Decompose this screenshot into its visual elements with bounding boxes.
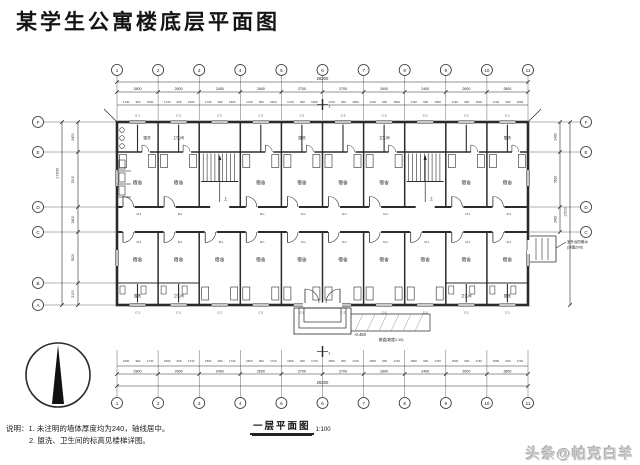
svg-text:1740: 1740	[352, 359, 359, 363]
svg-text:卫生间: 卫生间	[461, 293, 472, 298]
svg-text:900: 900	[341, 359, 346, 363]
svg-text:1500: 1500	[493, 359, 500, 363]
svg-text:宿舍: 宿舍	[133, 179, 143, 186]
svg-text:2800: 2800	[503, 87, 511, 91]
svg-text:1740: 1740	[164, 100, 171, 104]
svg-text:室外台阶散水: 室外台阶散水	[567, 239, 588, 244]
svg-text:2600: 2600	[380, 87, 388, 91]
svg-text:宿舍: 宿舍	[174, 256, 184, 263]
svg-text:M-1: M-1	[342, 212, 347, 216]
svg-text:1500: 1500	[188, 100, 195, 104]
svg-text:M-1: M-1	[137, 240, 142, 244]
svg-text:C-2: C-2	[464, 311, 469, 315]
svg-text:2700: 2700	[339, 369, 347, 373]
svg-text:1740: 1740	[188, 359, 195, 363]
svg-text:1740: 1740	[287, 100, 294, 104]
svg-text:2600: 2600	[462, 87, 470, 91]
svg-text:900: 900	[341, 100, 346, 104]
svg-text:1740: 1740	[517, 359, 524, 363]
svg-text:宿舍: 宿舍	[215, 256, 225, 263]
svg-text:M-1: M-1	[424, 240, 429, 244]
svg-text:1: 1	[116, 401, 119, 406]
drawing-title-text: 一层平面图	[250, 421, 314, 435]
svg-text:1: 1	[328, 104, 331, 109]
svg-text:2400: 2400	[71, 216, 75, 224]
svg-text:2700: 2700	[339, 87, 347, 91]
svg-text:宿舍: 宿舍	[338, 256, 348, 263]
svg-text:M-1: M-1	[260, 240, 265, 244]
svg-text:M-1: M-1	[507, 240, 512, 244]
svg-text:2800: 2800	[134, 87, 142, 91]
svg-text:2400: 2400	[216, 87, 224, 91]
svg-text:5100: 5100	[71, 176, 75, 184]
svg-text:17200: 17200	[564, 207, 568, 217]
svg-text:宿舍: 宿舍	[338, 179, 348, 186]
svg-text:1740: 1740	[393, 359, 400, 363]
svg-text:1740: 1740	[476, 359, 483, 363]
svg-text:盥洗: 盥洗	[504, 293, 512, 298]
svg-text:1500: 1500	[410, 359, 417, 363]
svg-text:M-1: M-1	[178, 212, 183, 216]
svg-text:5: 5	[280, 401, 283, 406]
svg-text:900: 900	[259, 100, 264, 104]
svg-text:1500: 1500	[476, 100, 483, 104]
svg-text:宿舍: 宿舍	[461, 256, 471, 263]
svg-text:M-1: M-1	[260, 212, 265, 216]
svg-text:1500: 1500	[393, 100, 400, 104]
svg-text:1500: 1500	[352, 100, 359, 104]
svg-text:900: 900	[218, 359, 223, 363]
svg-text:C-2: C-2	[423, 114, 428, 118]
svg-text:5200: 5200	[71, 254, 75, 262]
svg-text:C-1: C-1	[505, 114, 510, 118]
svg-text:900: 900	[423, 100, 428, 104]
svg-text:9: 9	[445, 68, 448, 73]
svg-text:1500: 1500	[205, 359, 212, 363]
svg-text:宿舍: 宿舍	[297, 179, 307, 186]
svg-text:1500: 1500	[287, 359, 294, 363]
svg-text:M-1: M-1	[383, 212, 388, 216]
svg-text:3: 3	[198, 401, 201, 406]
svg-text:2400: 2400	[421, 369, 429, 373]
svg-text:E: E	[36, 150, 39, 155]
svg-text:宿舍: 宿舍	[503, 179, 513, 186]
svg-text:F: F	[37, 120, 40, 125]
svg-text:1740: 1740	[434, 359, 441, 363]
svg-text:5100: 5100	[554, 176, 558, 183]
svg-text:C-2: C-2	[217, 114, 222, 118]
svg-text:1500: 1500	[123, 359, 130, 363]
svg-text:2600: 2600	[462, 369, 470, 373]
article-image-page: 某学生公寓楼底层平面图 1234567891011262002800174090…	[0, 0, 640, 465]
svg-text:1740: 1740	[147, 359, 154, 363]
svg-text:(详图Z/06): (详图Z/06)	[567, 245, 583, 250]
svg-text:1740: 1740	[229, 359, 236, 363]
svg-text:26200: 26200	[317, 76, 329, 81]
svg-text:1500: 1500	[434, 100, 441, 104]
svg-text:2700: 2700	[298, 87, 306, 91]
svg-text:900: 900	[464, 359, 469, 363]
svg-text:17200: 17200	[56, 168, 60, 179]
svg-text:26200: 26200	[317, 380, 329, 385]
svg-text:2600: 2600	[257, 87, 265, 91]
svg-text:2600: 2600	[175, 87, 183, 91]
svg-text:900: 900	[505, 100, 510, 104]
svg-text:盥洗: 盥洗	[134, 293, 141, 298]
svg-text:M-1: M-1	[178, 240, 183, 244]
svg-text:宿舍: 宿舍	[420, 256, 430, 263]
svg-text:2600: 2600	[257, 369, 265, 373]
svg-text:1740: 1740	[205, 100, 212, 104]
svg-text:2: 2	[157, 68, 160, 73]
svg-text:5: 5	[280, 68, 283, 73]
notes-line-2: 2. 盥洗、卫生间的标高见楼梯详图。	[6, 436, 150, 445]
svg-text:M-1: M-1	[137, 212, 142, 216]
svg-text:900: 900	[382, 359, 387, 363]
svg-text:C-1: C-1	[135, 114, 140, 118]
svg-text:900: 900	[259, 359, 264, 363]
svg-text:900: 900	[177, 100, 182, 104]
floor-plan-drawing: 1234567891011262002800174090015002600174…	[0, 0, 640, 465]
svg-text:2400: 2400	[554, 133, 558, 140]
svg-text:2700: 2700	[298, 369, 306, 373]
svg-text:C-2: C-2	[299, 114, 304, 118]
drawing-title: 一层平面图1:100	[250, 418, 331, 433]
svg-text:C-1: C-1	[505, 311, 510, 315]
svg-text:上: 上	[224, 195, 228, 201]
svg-text:宿舍: 宿舍	[379, 256, 389, 263]
svg-text:C-2: C-2	[258, 114, 263, 118]
svg-text:E: E	[584, 150, 587, 155]
svg-text:2400: 2400	[216, 369, 224, 373]
svg-text:-0.450: -0.450	[354, 332, 367, 337]
svg-text:宿舍: 宿舍	[297, 256, 307, 263]
svg-text:1: 1	[116, 68, 119, 73]
svg-text:2800: 2800	[134, 369, 142, 373]
svg-text:1500: 1500	[246, 359, 253, 363]
svg-text:1500: 1500	[147, 100, 154, 104]
svg-text:宿舍: 宿舍	[256, 256, 266, 263]
svg-text:卫生间: 卫生间	[173, 135, 184, 140]
svg-text:2800: 2800	[503, 369, 511, 373]
svg-text:宿舍: 宿舍	[379, 179, 389, 186]
svg-text:1500: 1500	[452, 359, 459, 363]
svg-text:2100: 2100	[71, 290, 75, 298]
svg-text:M-1: M-1	[383, 240, 388, 244]
svg-text:M-1: M-1	[219, 240, 224, 244]
svg-text:1740: 1740	[123, 100, 130, 104]
svg-text:4: 4	[239, 68, 242, 73]
svg-text:C-1: C-1	[135, 311, 140, 315]
svg-text:C-2: C-2	[341, 114, 346, 118]
svg-text:11: 11	[526, 401, 531, 406]
svg-text:上: 上	[429, 195, 433, 201]
svg-text:盥洗: 盥洗	[504, 135, 512, 140]
svg-text:2400: 2400	[421, 87, 429, 91]
svg-text:卫生间: 卫生间	[379, 135, 390, 140]
notes-line-1: 1. 未注明的墙体厚度均为240，轴线居中。	[29, 424, 170, 433]
svg-text:1500: 1500	[229, 100, 236, 104]
svg-text:7: 7	[362, 401, 365, 406]
drawing-scale: 1:100	[316, 427, 331, 433]
svg-text:8: 8	[403, 68, 406, 73]
svg-text:C-2: C-2	[217, 311, 222, 315]
svg-text:2: 2	[157, 401, 160, 406]
svg-text:900: 900	[300, 100, 305, 104]
svg-text:M-1: M-1	[301, 212, 306, 216]
svg-text:1740: 1740	[493, 100, 500, 104]
notes-block: 说明：1. 未注明的墙体厚度均为240，轴线居中。 2. 盥洗、卫生间的标高见楼…	[6, 423, 169, 446]
svg-text:1740: 1740	[311, 359, 318, 363]
svg-text:M-1: M-1	[465, 240, 470, 244]
svg-text:F: F	[585, 120, 588, 125]
svg-text:盥洗: 盥洗	[298, 135, 306, 140]
svg-text:宿舍: 宿舍	[174, 179, 184, 186]
svg-text:10: 10	[484, 68, 490, 73]
svg-text:盥洗: 盥洗	[143, 135, 151, 140]
svg-text:宿舍: 宿舍	[256, 179, 266, 186]
svg-text:2400: 2400	[554, 216, 558, 223]
svg-text:M-1: M-1	[301, 240, 306, 244]
svg-text:1: 1	[328, 351, 331, 356]
svg-text:4: 4	[239, 401, 242, 406]
svg-text:坡道(坡度1:10): 坡道(坡度1:10)	[378, 337, 404, 342]
svg-text:C-2: C-2	[258, 311, 263, 315]
notes-label: 说明：	[6, 424, 29, 433]
svg-text:900: 900	[136, 100, 141, 104]
svg-text:900: 900	[382, 100, 387, 104]
svg-text:宿舍: 宿舍	[133, 256, 143, 263]
svg-text:1500: 1500	[164, 359, 171, 363]
svg-text:M-1: M-1	[507, 212, 512, 216]
svg-text:1740: 1740	[246, 100, 253, 104]
svg-text:C-2: C-2	[341, 311, 346, 315]
svg-text:宿舍: 宿舍	[503, 256, 513, 263]
svg-text:900: 900	[136, 359, 141, 363]
svg-text:C-2: C-2	[464, 114, 469, 118]
svg-text:6: 6	[321, 401, 324, 406]
svg-text:2600: 2600	[380, 369, 388, 373]
svg-text:900: 900	[177, 359, 182, 363]
svg-text:900: 900	[423, 359, 428, 363]
svg-text:7: 7	[362, 68, 365, 73]
svg-text:1500: 1500	[328, 359, 335, 363]
svg-text:8: 8	[403, 401, 406, 406]
svg-text:900: 900	[464, 100, 469, 104]
svg-text:1500: 1500	[270, 100, 277, 104]
svg-text:1740: 1740	[452, 100, 459, 104]
svg-text:1740: 1740	[369, 100, 376, 104]
svg-text:2400: 2400	[71, 133, 75, 141]
svg-text:1740: 1740	[270, 359, 277, 363]
svg-text:C-2: C-2	[176, 311, 181, 315]
svg-text:6: 6	[321, 68, 324, 73]
svg-text:C-2: C-2	[176, 114, 181, 118]
watermark: 头条@帕克白羊	[526, 443, 634, 464]
svg-text:M-1: M-1	[342, 240, 347, 244]
svg-text:1500: 1500	[311, 100, 318, 104]
svg-text:1500: 1500	[517, 100, 524, 104]
svg-text:900: 900	[300, 359, 305, 363]
svg-text:11: 11	[526, 68, 531, 73]
svg-text:B: B	[36, 281, 39, 286]
svg-text:1500: 1500	[369, 359, 376, 363]
svg-text:900: 900	[505, 359, 510, 363]
svg-text:900: 900	[218, 100, 223, 104]
svg-text:M-1: M-1	[465, 212, 470, 216]
svg-text:C-2: C-2	[382, 114, 387, 118]
svg-text:2600: 2600	[175, 369, 183, 373]
svg-text:10: 10	[484, 401, 490, 406]
svg-text:3: 3	[198, 68, 201, 73]
svg-text:卫生间: 卫生间	[173, 293, 184, 298]
svg-text:1740: 1740	[410, 100, 417, 104]
svg-text:9: 9	[445, 401, 448, 406]
svg-text:宿舍: 宿舍	[461, 179, 471, 186]
